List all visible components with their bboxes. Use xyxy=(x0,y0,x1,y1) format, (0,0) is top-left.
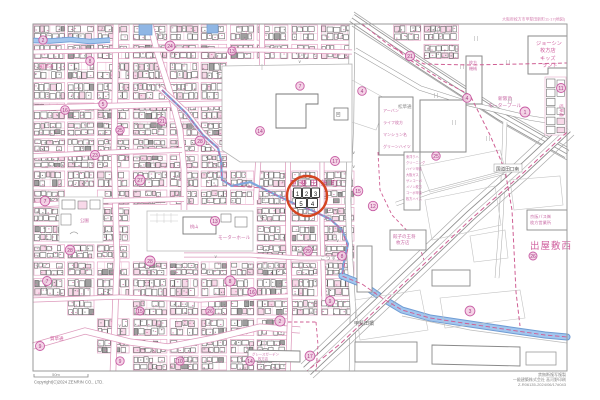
svg-text:14: 14 xyxy=(257,129,263,135)
svg-text:8: 8 xyxy=(229,279,232,285)
svg-text:| |: | | xyxy=(486,136,490,142)
svg-text:4: 4 xyxy=(361,89,364,95)
svg-text:マンション名: マンション名 xyxy=(383,131,407,137)
svg-text:ライフ枚方: ライフ枚方 xyxy=(383,119,403,125)
svg-text:| |: | | xyxy=(474,36,478,42)
svg-text:24: 24 xyxy=(167,44,173,50)
svg-text:21: 21 xyxy=(407,54,413,60)
svg-text:甲斐田橋: 甲斐田橋 xyxy=(354,320,374,327)
svg-text:3: 3 xyxy=(469,309,472,315)
svg-text:23: 23 xyxy=(92,153,98,159)
svg-text:大阪ガス: 大阪ガス xyxy=(406,172,419,177)
svg-text:コーポ甲斐: コーポ甲斐 xyxy=(406,190,423,195)
svg-text:13: 13 xyxy=(229,49,235,55)
svg-text:京阪バス㈱: 京阪バス㈱ xyxy=(530,213,552,220)
svg-text:クリーニング: クリーニング xyxy=(406,160,426,165)
svg-text:26: 26 xyxy=(207,309,213,315)
svg-text:枚方: 枚方 xyxy=(469,59,477,65)
svg-text:キッズ: キッズ xyxy=(540,54,556,62)
svg-text:賀草通: 賀草通 xyxy=(50,335,64,342)
svg-text:モータープール: モータープール xyxy=(488,102,521,109)
svg-text:アーバン: アーバン xyxy=(383,108,399,113)
svg-text:2: 2 xyxy=(279,319,282,325)
svg-text:枚方店: 枚方店 xyxy=(258,356,269,361)
svg-text:国道田口南: 国道田口南 xyxy=(496,166,519,173)
svg-text:枚方店: 枚方店 xyxy=(540,46,556,54)
svg-text:甲斐田新町: 甲斐田新町 xyxy=(290,179,341,188)
svg-text:9: 9 xyxy=(119,359,122,365)
svg-text:5: 5 xyxy=(102,102,105,108)
svg-text:28: 28 xyxy=(197,139,203,145)
svg-text:11: 11 xyxy=(558,86,563,92)
svg-text:| |: | | xyxy=(452,120,456,126)
svg-text:27: 27 xyxy=(137,178,143,184)
svg-text:松草通: 松草通 xyxy=(558,104,565,117)
svg-text:公園: 公園 xyxy=(80,217,89,224)
svg-text:| |: | | xyxy=(506,60,510,66)
svg-text:50m: 50m xyxy=(52,372,60,377)
svg-text:13: 13 xyxy=(212,219,218,225)
svg-text:Z-R06135-2024/06/17#043: Z-R06135-2024/06/17#043 xyxy=(518,382,567,387)
svg-text:大阪府枚方市甲斐田新町11-17(地図): 大阪府枚方市甲斐田新町11-17(地図) xyxy=(502,17,566,22)
svg-text:17: 17 xyxy=(307,354,313,360)
svg-text:9: 9 xyxy=(39,344,42,350)
svg-text:17: 17 xyxy=(332,159,338,165)
svg-text:9: 9 xyxy=(329,299,332,305)
svg-text:7: 7 xyxy=(46,279,49,285)
svg-text:15: 15 xyxy=(137,309,143,315)
svg-text:Copyright(C)2024 ZENRIN CO., L: Copyright(C)2024 ZENRIN CO., LTD. xyxy=(34,380,104,385)
svg-text:モーターホール: モーターホール xyxy=(218,234,251,241)
svg-text:紅草通: 紅草通 xyxy=(40,63,54,70)
svg-text:出屋敷西: 出屋敷西 xyxy=(530,240,572,252)
svg-text:12: 12 xyxy=(370,204,376,210)
svg-text:枚方ハイム: 枚方ハイム xyxy=(406,196,422,201)
svg-text:16: 16 xyxy=(62,108,68,114)
svg-text:10: 10 xyxy=(177,359,183,365)
svg-text:25: 25 xyxy=(117,128,123,134)
svg-text:4: 4 xyxy=(466,96,469,102)
svg-text:28: 28 xyxy=(67,248,73,254)
svg-text:サンコーポ: サンコーポ xyxy=(406,178,422,183)
svg-text:25: 25 xyxy=(433,154,439,160)
svg-text:15: 15 xyxy=(355,189,361,195)
svg-text:29: 29 xyxy=(305,249,311,255)
svg-text:ジョーシン: ジョーシン xyxy=(536,41,562,47)
svg-text:ハイツ甲斐: ハイツ甲斐 xyxy=(406,166,423,171)
svg-text:グレースガーデン: グレースガーデン xyxy=(252,352,280,357)
svg-text:8: 8 xyxy=(341,254,344,260)
svg-text:東洋クハ: 東洋クハ xyxy=(406,154,419,159)
svg-text:メゾン枚方: メゾン枚方 xyxy=(406,184,423,189)
svg-text:枚方営業所: 枚方営業所 xyxy=(530,219,552,226)
svg-text:7: 7 xyxy=(299,84,302,90)
svg-text:1: 1 xyxy=(524,110,527,116)
svg-text:| |: | | xyxy=(508,98,512,104)
svg-text:21: 21 xyxy=(159,119,165,125)
svg-text:グリーンハイツ: グリーンハイツ xyxy=(383,143,411,149)
svg-text:28: 28 xyxy=(147,259,153,265)
svg-text:7: 7 xyxy=(44,199,47,205)
svg-text:餃子の王将: 餃子の王将 xyxy=(393,233,416,240)
svg-text:14: 14 xyxy=(247,359,253,365)
svg-text:16: 16 xyxy=(249,290,255,296)
svg-text:8: 8 xyxy=(89,59,92,65)
svg-text:機械: 機械 xyxy=(469,65,477,71)
svg-text:| |: | | xyxy=(434,93,438,99)
svg-text:桃山: 桃山 xyxy=(190,223,198,230)
svg-text:2: 2 xyxy=(42,38,45,44)
svg-text:枚方店: 枚方店 xyxy=(396,239,410,246)
svg-text:26: 26 xyxy=(530,254,536,260)
svg-text:| |: | | xyxy=(434,28,438,34)
svg-text:松草通: 松草通 xyxy=(398,103,412,110)
